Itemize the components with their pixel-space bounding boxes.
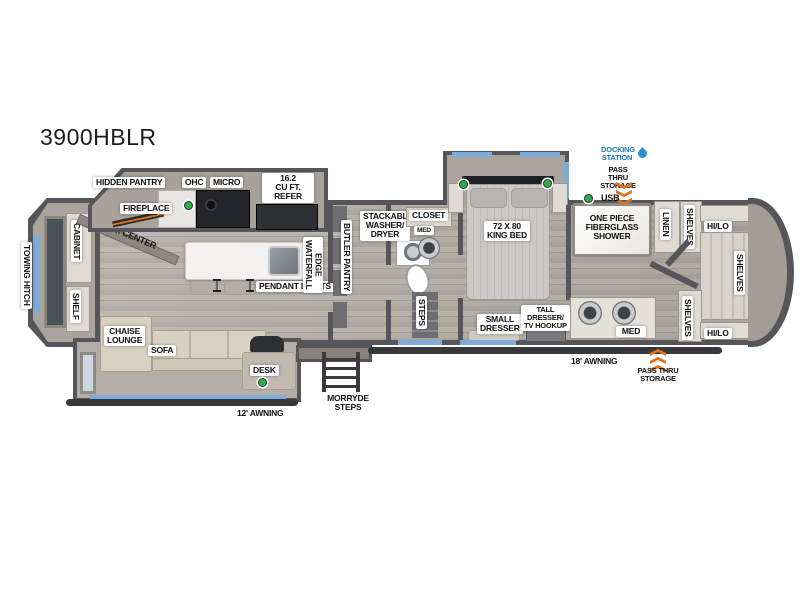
bottom-window-strip — [398, 340, 442, 345]
hi-lo-label-bottom: HI/LO — [704, 328, 732, 339]
awning-12-label: 12' AWNING — [234, 408, 286, 419]
pendant-light-icon — [213, 279, 221, 292]
wall — [566, 205, 571, 300]
awning-18-label: 18' AWNING — [568, 356, 620, 367]
waterfall-edge-label: WATERFALL EDGE — [303, 237, 323, 293]
bottom-window-strip — [460, 340, 516, 345]
fireplace-label: FIREPLACE — [120, 203, 172, 214]
king-bed-label: 72 X 80 KING BED — [484, 221, 530, 241]
shower-label: ONE PIECE FIBERGLASS SHOWER — [580, 213, 644, 243]
pillow — [470, 188, 507, 208]
sofa-label: SOFA — [148, 345, 176, 356]
chevron-up-icon — [650, 349, 666, 356]
morryde-steps-ladder — [322, 352, 360, 392]
refrigerator-front — [256, 204, 318, 230]
butler-pantry-label: BUTLER PANTRY — [341, 220, 352, 294]
rear-wardrobe — [700, 232, 754, 320]
range-cooktop — [196, 190, 250, 228]
towing-hitch-label: TOWING HITCH — [21, 242, 32, 309]
usb-label: USB — [598, 193, 622, 205]
shelf-label: SHELF — [70, 290, 81, 323]
linen-label: LINEN — [660, 209, 671, 240]
chevron-down-icon — [616, 182, 632, 189]
usb-green-dot — [584, 194, 593, 203]
awning-12-bar — [66, 399, 298, 406]
vanity-sink — [578, 301, 602, 325]
chaise-lounge-label: CHAISE LOUNGE — [104, 326, 145, 346]
pantry-shelf — [333, 302, 347, 328]
refer-label: 16.2 CU FT. REFER — [262, 173, 314, 203]
bath-sink — [418, 237, 440, 259]
island-sink — [268, 246, 300, 276]
micro-label: MICRO — [210, 177, 243, 188]
desk-chair — [250, 336, 284, 352]
tall-dresser-label: TALL DRESSER/ TV HOOKUP — [521, 305, 570, 331]
steps-label: STEPS — [416, 296, 427, 329]
kitchen-green-dot — [184, 201, 193, 210]
pillow — [511, 188, 548, 208]
ohc-label: OHC — [182, 177, 206, 188]
hidden-pantry-label: HIDDEN PANTRY — [93, 177, 165, 188]
wall — [458, 298, 463, 340]
floorplan-page: 3900HBLR TOWING HITCH CABINET SHELF ENT.… — [0, 0, 800, 600]
morryde-steps-label: MORRYDE STEPS — [320, 393, 376, 413]
bedroom-window-strip — [452, 152, 492, 157]
hi-lo-rod-top — [700, 205, 752, 222]
med-rear-label: MED — [616, 326, 646, 337]
closet-label: CLOSET — [409, 210, 448, 221]
docking-station-label: DOCKING STATION — [598, 145, 636, 163]
desk-label: DESK — [250, 365, 279, 376]
desk-green-dot — [258, 378, 267, 387]
model-title: 3900HBLR — [40, 124, 157, 151]
pass-thru-bottom-label: PASS THRU STORAGE — [634, 366, 682, 384]
cabinet-label: CABINET — [71, 220, 82, 262]
med-cabinet-label: MED — [414, 226, 434, 235]
pendant-light-icon — [246, 279, 254, 292]
small-dresser-label: SMALL DRESSER — [477, 314, 523, 334]
chevron-up-icon — [650, 357, 666, 364]
shelves-rear-label: SHELVES — [734, 251, 745, 295]
bed-green-dot — [459, 180, 468, 189]
front-window — [44, 216, 66, 328]
hi-lo-label-top: HI/LO — [704, 221, 732, 232]
shelves-label-bottom: SHELVES — [682, 296, 693, 340]
bedroom-window-strip — [520, 152, 560, 157]
vanity-sink — [612, 301, 636, 325]
stackable-washer-dryer-label: STACKABLE WASHER/ DRYER — [360, 211, 410, 241]
awning-18-bar — [368, 347, 722, 354]
wall — [386, 300, 391, 340]
front-window-strip — [34, 235, 40, 313]
bed-green-dot — [543, 179, 552, 188]
water-drop-icon — [636, 147, 649, 160]
slide-end-window — [80, 352, 96, 394]
